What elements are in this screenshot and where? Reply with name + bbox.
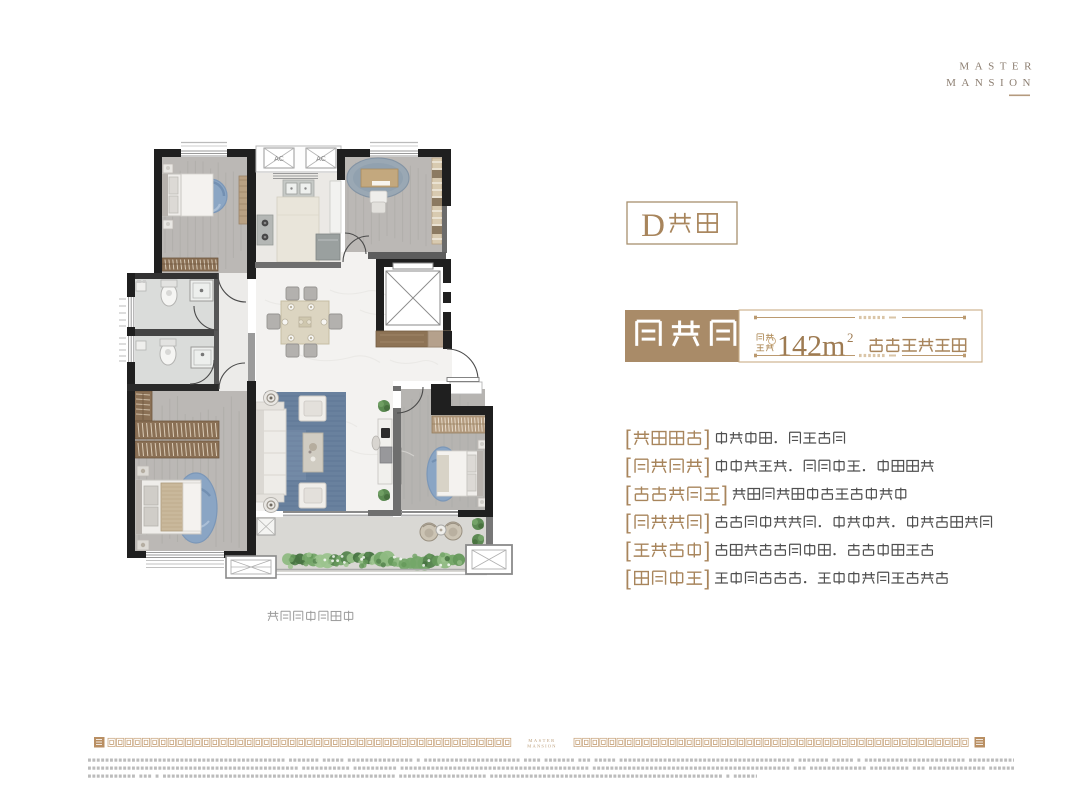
svg-text:AC: AC [274, 156, 284, 163]
svg-text:[: [ [625, 539, 631, 562]
svg-text:MANSION: MANSION [527, 744, 556, 749]
svg-text:MASTER: MASTER [528, 738, 555, 743]
svg-text:]: ] [704, 455, 710, 478]
svg-text:]: ] [704, 567, 710, 590]
svg-text:[: [ [625, 567, 631, 590]
svg-text:[: [ [625, 427, 631, 450]
svg-text:[: [ [625, 511, 631, 534]
svg-text:MASTER: MASTER [959, 61, 1037, 73]
svg-text:2: 2 [847, 330, 854, 345]
svg-text:142m: 142m [777, 330, 845, 363]
svg-text:]: ] [704, 511, 710, 534]
svg-text:]: ] [704, 539, 710, 562]
svg-text:[: [ [625, 483, 631, 506]
svg-text:]: ] [704, 427, 710, 450]
svg-text:AC: AC [316, 156, 326, 163]
svg-text:D: D [641, 208, 665, 244]
svg-text:MANSION: MANSION [946, 77, 1036, 89]
svg-text:]: ] [722, 483, 728, 506]
svg-text:[: [ [625, 455, 631, 478]
